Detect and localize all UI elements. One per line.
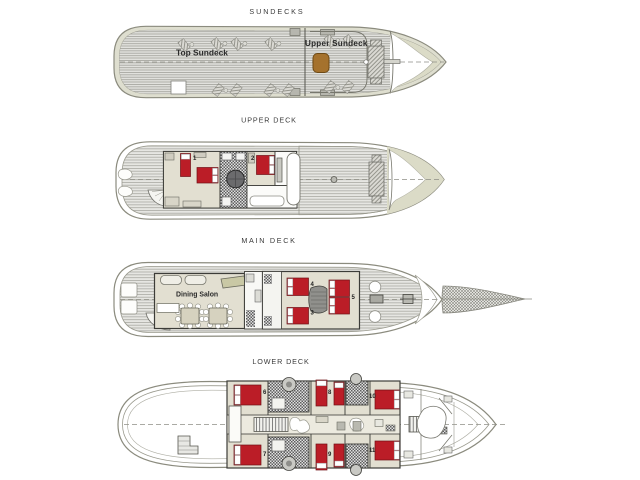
svg-text:Upper Sundeck: Upper Sundeck [305, 39, 368, 48]
svg-text:Dining Salon: Dining Salon [176, 292, 218, 299]
svg-text:Top Sundeck: Top Sundeck [176, 48, 228, 58]
svg-text:MAIN DECK: MAIN DECK [241, 236, 296, 245]
svg-text:11: 11 [369, 448, 376, 454]
svg-text:10: 10 [369, 394, 376, 400]
svg-text:LOWER DECK: LOWER DECK [252, 357, 309, 366]
svg-text:UPPER DECK: UPPER DECK [241, 116, 297, 125]
svg-text:SUNDECKS: SUNDECKS [249, 7, 304, 16]
